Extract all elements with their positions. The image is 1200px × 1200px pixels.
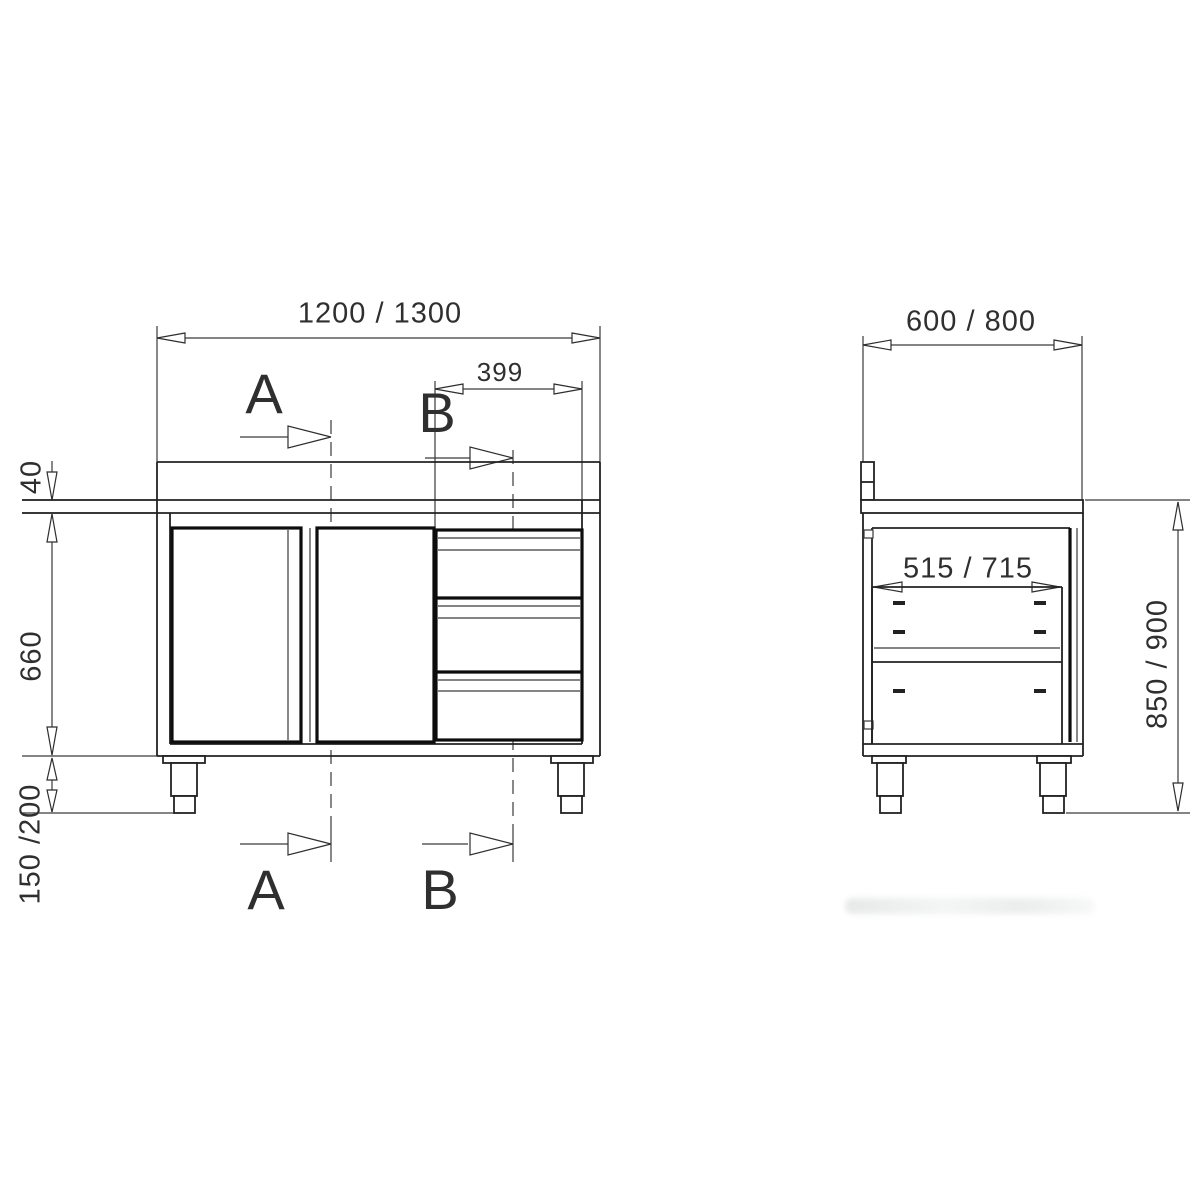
leg-height-dimension-label: 150 /200 [17, 784, 46, 905]
front-width-dimension-label: 1200 / 1300 [298, 300, 462, 329]
front-drawer-block [436, 530, 582, 740]
technical-drawing-canvas: 1200 / 1300 399 A B A B 40 660 150 /200 … [0, 0, 1200, 1200]
drawer-width-dimension-label: 399 [477, 359, 523, 385]
side-height-dimension-label: 850 / 900 [1144, 599, 1173, 729]
watermark-smudge [845, 898, 1095, 914]
side-inner-depth-dimension-label: 515 / 715 [903, 555, 1033, 584]
drawing-linework [0, 0, 1200, 1200]
side-depth-dimension-label: 600 / 800 [906, 308, 1036, 337]
section-label-b-bottom: B [421, 862, 458, 918]
section-label-a-bottom: A [247, 862, 284, 918]
section-label-a-top: A [245, 366, 282, 422]
front-legs [163, 756, 593, 813]
front-sliding-doors [172, 528, 434, 742]
body-height-dimension-label: 660 [18, 630, 47, 681]
side-cabinet-outline [861, 462, 1083, 756]
side-legs [872, 756, 1071, 813]
worktop-thickness-dimension-label: 40 [18, 460, 47, 494]
section-label-b-top: B [418, 385, 455, 441]
